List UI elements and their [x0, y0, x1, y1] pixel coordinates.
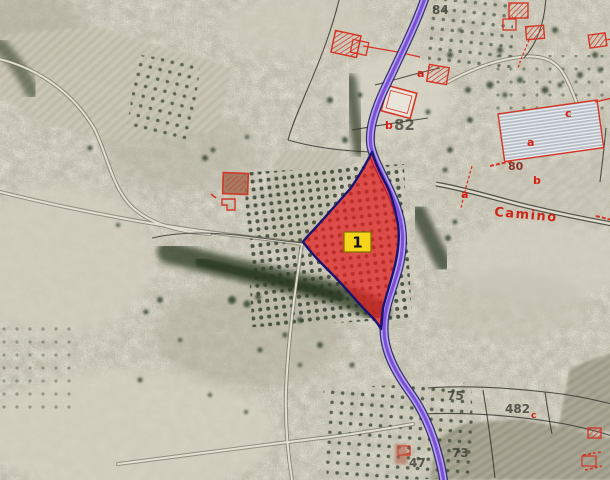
road-number-84: 84	[432, 3, 449, 17]
parcel-number-47: 47	[409, 456, 426, 470]
map-viewport[interactable]: 84 a b 82 80 a c b a Camino 75 482 c 73 …	[0, 0, 610, 480]
parcel-number-75: 75	[447, 389, 464, 403]
subparcel-letter-b1: b	[385, 119, 393, 132]
subparcel-letter-a2: a	[527, 136, 534, 149]
parcel-number-82: 82	[394, 116, 415, 134]
parcel-number-73: 73	[452, 446, 469, 460]
subparcel-letter-c2: c	[531, 411, 536, 421]
marker-label: 1	[352, 234, 362, 252]
parcel-number-482: 482	[505, 402, 530, 416]
subparcel-letter-b2: b	[533, 174, 541, 187]
subparcel-letter-a3: a	[461, 188, 468, 201]
subparcel-letter-c1: c	[565, 107, 572, 120]
aerial-map[interactable]: 84 a b 82 80 a c b a Camino 75 482 c 73 …	[0, 0, 610, 480]
parcel-1-marker[interactable]: 1	[344, 232, 371, 252]
subparcel-letter-a1: a	[417, 67, 424, 80]
parcel-number-80: 80	[508, 160, 524, 173]
